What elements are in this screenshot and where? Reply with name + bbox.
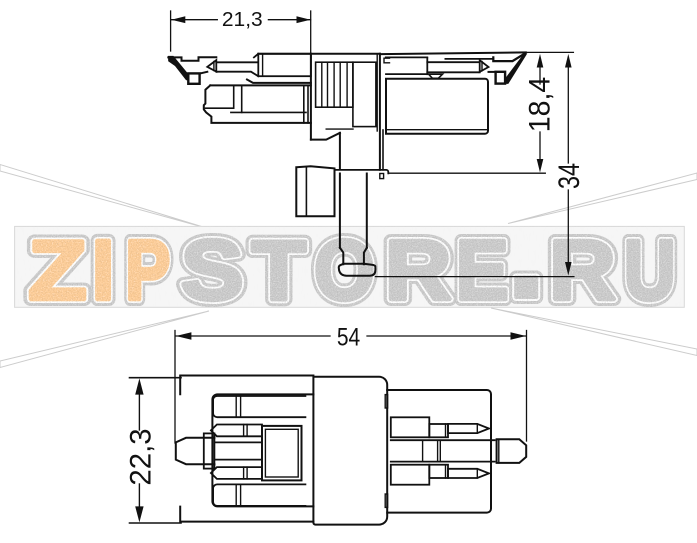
svg-text:U: U [624, 222, 676, 317]
svg-text:P: P [125, 224, 170, 318]
svg-text:R: R [385, 223, 451, 318]
svg-text:O: O [314, 224, 374, 317]
svg-text:21,3: 21,3 [222, 9, 263, 31]
svg-text:22,3: 22,3 [124, 428, 157, 485]
svg-text:I: I [92, 224, 114, 317]
svg-text:54: 54 [337, 323, 360, 351]
svg-text:R: R [549, 223, 615, 318]
svg-text:Z: Z [29, 223, 87, 317]
svg-text:T: T [252, 224, 306, 318]
svg-text:18,4: 18,4 [524, 77, 557, 132]
svg-text:S: S [181, 223, 243, 317]
svg-text:34: 34 [552, 163, 585, 189]
svg-text:E: E [456, 224, 509, 318]
